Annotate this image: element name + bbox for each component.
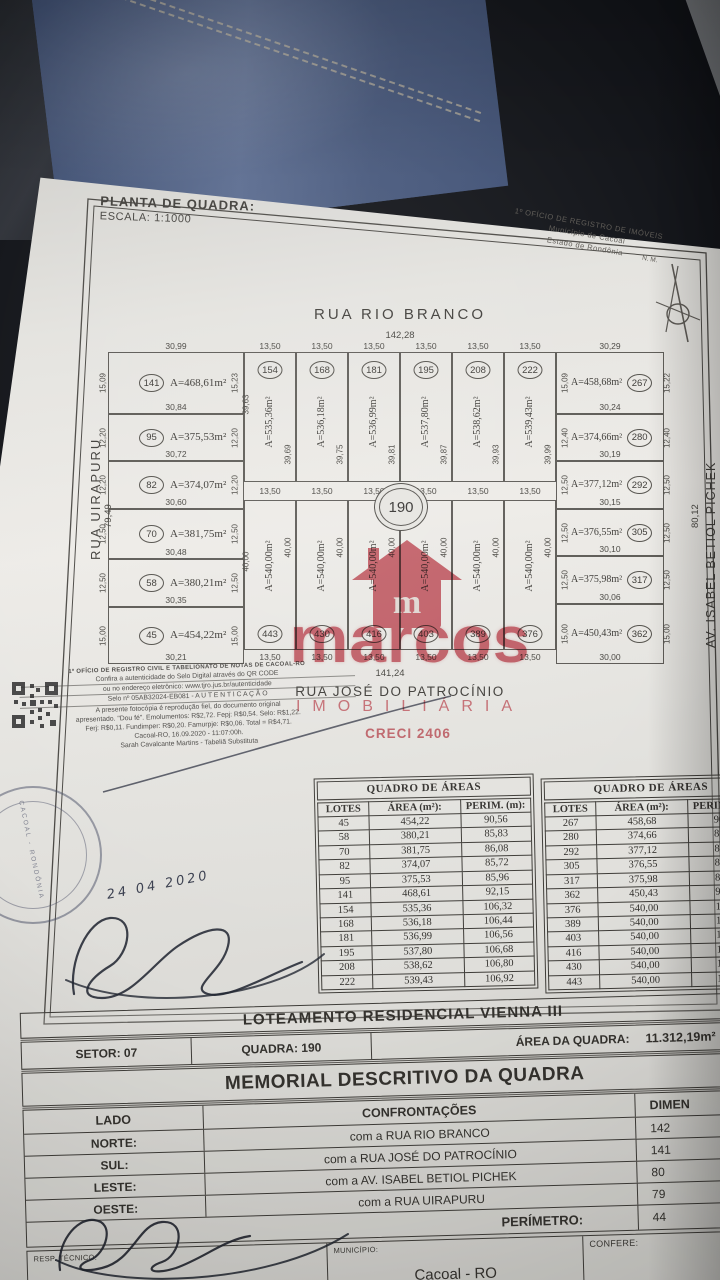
lot-area: A=539,43m² [525, 397, 535, 448]
lot-dim-bottom: 30,21 [109, 652, 243, 662]
lot-82: 12,20 82 A=374,07m² 12,20 30,60 [108, 461, 244, 509]
lot-dim-right: 15,00 [230, 625, 239, 645]
lot-dim-left: 12,50 [561, 570, 570, 590]
table-cell: 416 [548, 946, 599, 962]
lot-number: 208 [466, 361, 491, 379]
column-header-dimensoes: DIMEN [635, 1089, 720, 1116]
lot-number: 222 [518, 361, 543, 379]
lot-dim-bottom: 30,60 [109, 497, 243, 507]
lot-dim-left: 12,20 [99, 475, 108, 495]
signature [58, 902, 348, 1020]
inner-dimension: 39,63 [242, 394, 251, 414]
lot-222: 13,50 222 A=539,43m² 39,99 13,50 [504, 352, 556, 482]
lot-number: 141 [139, 374, 164, 392]
table-cell: 70 [319, 845, 370, 861]
lot-dim-top: 30,99 [109, 341, 243, 351]
block-map: 30,99 15,09 141 A=468,61m² 15,23 30,84 1… [108, 352, 664, 664]
lot-depth: 39,99 [543, 444, 552, 464]
table-cell: 106,44 [463, 913, 534, 929]
street-north-label: RUA RIO BRANCO [250, 306, 550, 323]
lot-area: A=536,99m² [369, 397, 379, 448]
lot-dim-right: 15,00 [662, 624, 671, 644]
lot-depth: 39,69 [283, 444, 292, 464]
lot-depth: 40,00 [387, 537, 396, 557]
photographed-plat-document: PLANTA DE QUADRA: ESCALA: 1:1000 1º OFÍC… [0, 0, 720, 1280]
lot-dim-left: 15,09 [99, 373, 108, 393]
lot-area: A=468,61m² [170, 378, 226, 389]
lot-number: 403 [414, 625, 439, 643]
lot-number: 45 [139, 627, 164, 645]
lot-dim-right: 12,40 [662, 427, 671, 447]
lot-area: A=450,43m² [571, 629, 622, 639]
lot-depth: 39,75 [335, 444, 344, 464]
lot-141: 30,99 15,09 141 A=468,61m² 15,23 30,84 [108, 352, 244, 414]
table-cell: 107, [691, 942, 720, 958]
table-cell: 540,00 [600, 972, 692, 989]
table-cell: 376 [547, 902, 598, 918]
lot-dim-left: 12,40 [561, 427, 570, 447]
lot-dim-bottom: 30,00 [557, 652, 663, 662]
table-cell: 90,56 [461, 812, 532, 828]
lot-area: A=374,07m² [170, 480, 226, 491]
lot-dim-bottom: 30,84 [109, 402, 243, 412]
lot-280: 12,40 A=374,66m² 280 12,40 30,19 [556, 414, 664, 461]
confere-label: CONFERE: [589, 1238, 638, 1249]
lot-number: 305 [627, 524, 652, 542]
lot-number: 70 [139, 525, 164, 543]
lot-dim-bottom: 30,24 [557, 402, 663, 412]
lot-dim-left: 15,00 [561, 624, 570, 644]
lot-area: A=540,00m² [369, 541, 379, 592]
lot-depth: 39,81 [387, 444, 396, 464]
lot-number: 389 [466, 625, 491, 643]
table-cell: 85,72 [462, 855, 533, 871]
lot-depth: 39,93 [491, 444, 500, 464]
lot-area: A=376,55m² [571, 528, 622, 538]
table-cell: 106,80 [464, 956, 535, 972]
lot-number: 430 [310, 625, 335, 643]
north-arrow-icon [636, 262, 714, 346]
lot-dim-left: 12,20 [99, 427, 108, 447]
lot-number: 416 [362, 625, 387, 643]
quadra-cell: QUADRA: 190 [192, 1033, 373, 1064]
lot-number: 317 [627, 571, 652, 589]
lot-area: A=540,00m² [473, 541, 483, 592]
lot-dim-left: 12,50 [561, 475, 570, 495]
lot-number: 82 [139, 476, 164, 494]
lot-area: A=535,36m² [265, 397, 275, 448]
lot-area: A=536,18m² [317, 397, 327, 448]
lot-width-top: 13,50 [505, 341, 555, 351]
lot-267: 30,29 15,09 A=458,68m² 267 15,22 30,24 [556, 352, 664, 414]
lot-dim-bottom: 30,10 [557, 544, 663, 554]
lot-depth: 40,00 [439, 537, 448, 557]
area-table: LOTES ÁREA (m²): PERIM. (m): 45454,2290,… [317, 797, 535, 990]
area-quadra-value: 11.312,19m² [645, 1029, 716, 1045]
lot-area: A=377,12m² [571, 480, 622, 490]
lot-dim-right: 15,23 [230, 373, 239, 393]
dimensao-value: 142 [636, 1113, 720, 1138]
lot-area: A=538,62m² [473, 397, 483, 448]
lot-width-bottom: 13,50 [505, 652, 555, 662]
column-header: LOTES [318, 801, 369, 817]
lot-dim-left: 12,50 [99, 524, 108, 544]
lot-number: 376 [518, 625, 543, 643]
lot-width-bottom: 13,50 [349, 652, 399, 662]
lot-305: 12,50 A=376,55m² 305 12,50 30,10 [556, 509, 664, 556]
setor-cell: SETOR: 07 [22, 1038, 193, 1069]
lot-dim-right: 12,50 [230, 524, 239, 544]
lot-dim-right: 12,50 [662, 570, 671, 590]
lot-width-top: 13,50 [245, 341, 295, 351]
area-table: LOTES ÁREA (m²): PERIM. (m): 267458,6890… [544, 797, 720, 990]
lot-208: 13,50 208 A=538,62m² 39,93 13,50 [452, 352, 504, 482]
table-cell: 107, [691, 971, 720, 987]
quadra-number: 190 [379, 488, 423, 526]
table-cell: 95 [319, 873, 370, 889]
confere-cell: CONFERE: [583, 1230, 720, 1280]
municipio-value: Cacoal - RO [328, 1262, 583, 1280]
table-cell: 443 [549, 974, 600, 990]
municipio-cell: MUNICÍPIO: Cacoal - RO [327, 1236, 585, 1280]
table-cell: 92,15 [462, 884, 533, 900]
lot-dim-bottom: 30,35 [109, 595, 243, 605]
lot-number: 181 [362, 361, 387, 379]
lot-width-top: 13,50 [297, 341, 347, 351]
lot-width-bottom: 13,50 [453, 486, 503, 496]
lot-area: A=540,00m² [265, 541, 275, 592]
resp-tecnico-signature [52, 1210, 362, 1280]
table-cell: 86,08 [461, 841, 532, 857]
lot-dim-bottom: 30,06 [557, 592, 663, 602]
lot-45: 15,00 45 A=454,22m² 15,00 30,21 [108, 607, 244, 664]
lot-195: 13,50 195 A=537,80m² 39,87 13,50 [400, 352, 452, 482]
table-cell: 106,32 [463, 899, 534, 915]
lot-dim-bottom: 30,48 [109, 547, 243, 557]
lot-width-bottom: 13,50 [297, 486, 347, 496]
lot-width-top: 13,50 [349, 341, 399, 351]
lot-number: 195 [414, 361, 439, 379]
table-cell: 106,92 [464, 971, 535, 987]
table-cell: 107, [690, 913, 720, 929]
lot-area: A=540,00m² [421, 541, 431, 592]
table-cell: 106,68 [464, 942, 535, 958]
lot-depth: 39,87 [439, 444, 448, 464]
lot-292: 12,50 A=377,12m² 292 12,50 30,15 [556, 461, 664, 509]
lot-dim-bottom: 30,15 [557, 497, 663, 507]
table-cell: 280 [545, 830, 596, 846]
lot-area: A=537,80m² [421, 397, 431, 448]
lot-area: A=540,00m² [525, 541, 535, 592]
lot-width-bottom: 13,50 [401, 652, 451, 662]
lot-number: 95 [139, 429, 164, 447]
lot-dim-right: 12,20 [230, 427, 239, 447]
lot-70: 12,50 70 A=381,75m² 12,50 30,48 [108, 509, 244, 559]
street-north-dimension: 142,28 [330, 330, 470, 341]
perimetro-label: PERÍMETRO: [446, 1206, 639, 1235]
street-east-dimension: 80,12 [690, 504, 701, 528]
dimensao-value: 141 [637, 1135, 720, 1160]
pen-stroke [95, 688, 465, 803]
lot-dim-left: 12,50 [561, 522, 570, 542]
dimensao-value: 79 [638, 1179, 720, 1204]
table-cell: 317 [546, 873, 597, 889]
lot-area: A=380,21m² [170, 578, 226, 589]
lot-width-bottom: 13,50 [453, 652, 503, 662]
lot-dim-bottom: 30,19 [557, 449, 663, 459]
lot-168: 13,50 168 A=536,18m² 39,75 13,50 [296, 352, 348, 482]
area-table-right: QUADRO DE ÁREAS LOTES ÁREA (m²): PERIM. … [541, 774, 720, 994]
table-cell: 389 [547, 917, 598, 933]
table-cell: 85,8 [688, 826, 720, 842]
lot-dim-left: 15,09 [561, 373, 570, 393]
lot-dim-right: 12,50 [230, 573, 239, 593]
table-cell: 58 [318, 830, 369, 846]
table-cell: 430 [548, 960, 599, 976]
lot-depth: 40,00 [543, 537, 552, 557]
quadra-number-circle: 190 [374, 483, 428, 531]
lot-number: 168 [310, 361, 335, 379]
lot-number: 443 [258, 625, 283, 643]
lot-dim-right: 12,50 [662, 522, 671, 542]
lot-dim-top: 30,29 [557, 341, 663, 351]
lot-area: A=458,68m² [571, 378, 622, 388]
table-cell: 107, [690, 899, 720, 915]
table-cell: 85,83 [461, 826, 532, 842]
street-east-label: AV. ISABEL BETIOL PICHEK [704, 462, 718, 648]
lot-width-top: 13,50 [401, 341, 451, 351]
table-cell: 82 [319, 859, 370, 875]
column-header: PERIM. (m): [460, 798, 531, 814]
lot-area: A=540,00m² [317, 541, 327, 592]
lot-dim-right: 12,50 [662, 475, 671, 495]
lot-number: 58 [139, 574, 164, 592]
table-cell: 85,7 [689, 855, 720, 871]
lot-389: A=540,00m² 40,00 389 13,50 [452, 500, 504, 650]
lot-154: 13,50 154 A=535,36m² 39,69 13,50 [244, 352, 296, 482]
lot-depth: 40,00 [283, 537, 292, 557]
lot-area: A=374,66m² [571, 433, 622, 443]
table-cell: 107, [691, 956, 720, 972]
table-cell: 539,43 [373, 972, 465, 989]
table-cell: 403 [548, 931, 599, 947]
lot-area: A=454,22m² [170, 630, 226, 641]
table-cell: 106,56 [463, 928, 534, 944]
lot-dim-right: 12,20 [230, 475, 239, 495]
lot-area: A=375,98m² [571, 575, 622, 585]
table-cell: 85,9 [688, 841, 720, 857]
table-cell: 107, [690, 928, 720, 944]
column-header: LOTES [545, 801, 596, 817]
lot-362: 15,00 A=450,43m² 362 15,00 30,00 [556, 604, 664, 664]
lot-width-bottom: 13,50 [505, 486, 555, 496]
table-cell: 45 [318, 816, 369, 832]
lot-number: 154 [258, 361, 283, 379]
lot-number: 280 [627, 429, 652, 447]
table-cell: 85,96 [462, 870, 533, 886]
lot-443: A=540,00m² 40,00 443 13,50 [244, 500, 296, 650]
lot-depth: 40,00 [335, 537, 344, 557]
table-cell: 267 [545, 816, 596, 832]
lot-number: 292 [627, 476, 652, 494]
lot-58: 12,50 58 A=380,21m² 12,50 30,35 [108, 559, 244, 607]
dimensao-value: 80 [637, 1157, 720, 1182]
qr-code-icon [12, 682, 58, 728]
lot-317: 12,50 A=375,98m² 317 12,50 30,06 [556, 556, 664, 604]
lot-430: A=540,00m² 40,00 430 13,50 [296, 500, 348, 650]
column-header: PERIM. (m): [687, 798, 720, 814]
lot-number: 362 [627, 625, 652, 643]
lot-dim-right: 15,22 [662, 373, 671, 393]
lot-181: 13,50 181 A=536,99m² 39,81 13,50 [348, 352, 400, 482]
table-cell: 362 [547, 888, 598, 904]
lot-dim-bottom: 30,72 [109, 449, 243, 459]
perimetro-value: 44 [638, 1201, 720, 1229]
lot-area: A=381,75m² [170, 529, 226, 540]
area-table-title: QUADRO DE ÁREAS [544, 777, 720, 800]
table-cell: 85,9 [689, 870, 720, 886]
lot-376: A=540,00m² 40,00 376 13,50 [504, 500, 556, 650]
lot-95: 12,20 95 A=375,53m² 12,20 30,72 [108, 414, 244, 461]
table-cell: 90,5 [688, 812, 720, 828]
lot-dim-left: 15,00 [99, 625, 108, 645]
lot-width-bottom: 13,50 [245, 486, 295, 496]
lot-depth: 40,00 [491, 537, 500, 557]
lot-area: A=375,53m² [170, 432, 226, 443]
lot-width-top: 13,50 [453, 341, 503, 351]
table-cell: 305 [546, 859, 597, 875]
table-cell: 90,4 [689, 884, 720, 900]
area-quadra-label: ÁREA DA QUADRA: [516, 1032, 630, 1049]
inner-dimension: 40,00 [242, 551, 251, 571]
table-cell: 292 [546, 845, 597, 861]
lot-number: 267 [627, 374, 652, 392]
lot-dim-left: 12,50 [99, 573, 108, 593]
